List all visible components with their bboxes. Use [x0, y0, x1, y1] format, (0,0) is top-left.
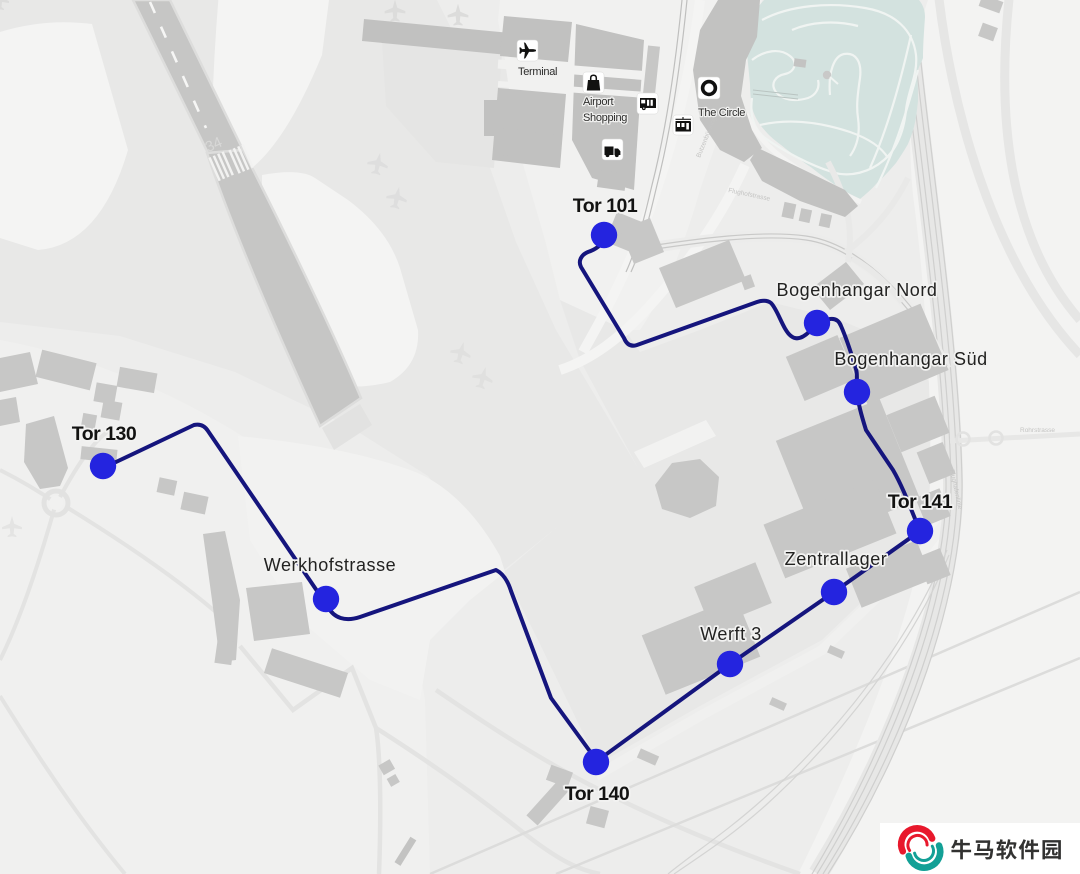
- svg-text:Shopping: Shopping: [583, 112, 627, 124]
- svg-text:Werkhofstrasse: Werkhofstrasse: [264, 555, 396, 575]
- svg-text:Tor 130: Tor 130: [72, 423, 137, 445]
- svg-text:Zentrallager: Zentrallager: [785, 549, 888, 569]
- svg-text:Bogenhangar Nord: Bogenhangar Nord: [777, 280, 938, 300]
- svg-text:Werft 3: Werft 3: [700, 624, 762, 644]
- svg-text:Tor 141: Tor 141: [888, 491, 953, 513]
- svg-text:Terminal: Terminal: [518, 66, 557, 78]
- svg-text:Tor 140: Tor 140: [565, 783, 630, 805]
- svg-text:Tor 101: Tor 101: [573, 195, 638, 217]
- svg-text:Airport: Airport: [583, 96, 614, 108]
- svg-text:The Circle: The Circle: [698, 107, 745, 119]
- svg-text:Rohrstrasse: Rohrstrasse: [1020, 427, 1055, 434]
- svg-text:Bogenhangar Süd: Bogenhangar Süd: [834, 349, 987, 369]
